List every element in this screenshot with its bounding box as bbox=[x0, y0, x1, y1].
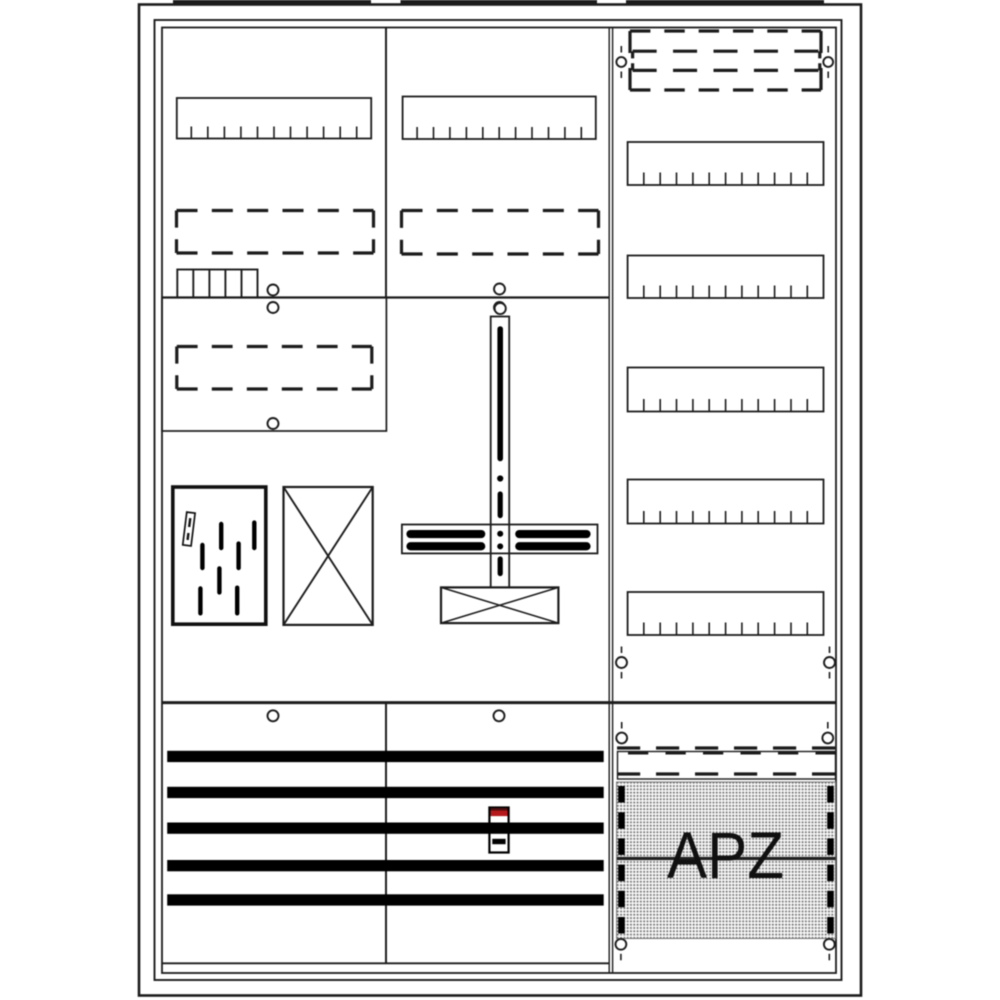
svg-text:APZ: APZ bbox=[667, 818, 784, 892]
